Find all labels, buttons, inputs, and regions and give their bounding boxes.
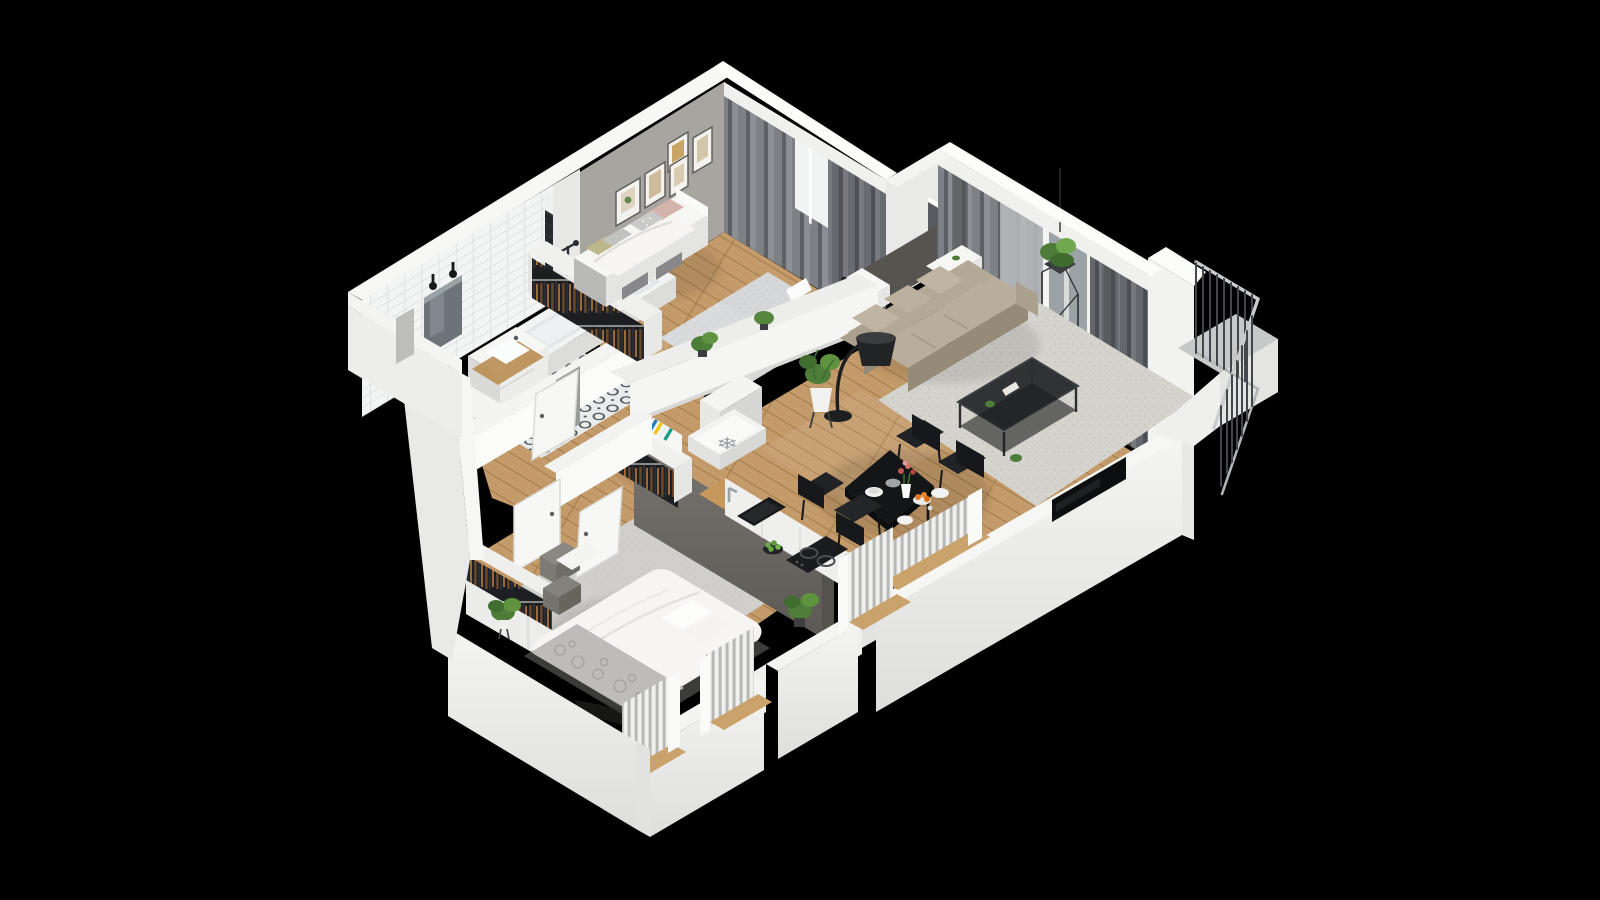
glass-plate <box>886 479 901 488</box>
glass <box>928 506 933 511</box>
apartment-floorplan-render: ❄ <box>0 0 1600 900</box>
snowflake-icon: ❄ <box>716 435 738 454</box>
small-floor-plant <box>1010 454 1022 462</box>
plate <box>897 515 913 524</box>
plate <box>931 488 949 498</box>
screenshot-canvas: ❄ <box>0 0 1600 900</box>
